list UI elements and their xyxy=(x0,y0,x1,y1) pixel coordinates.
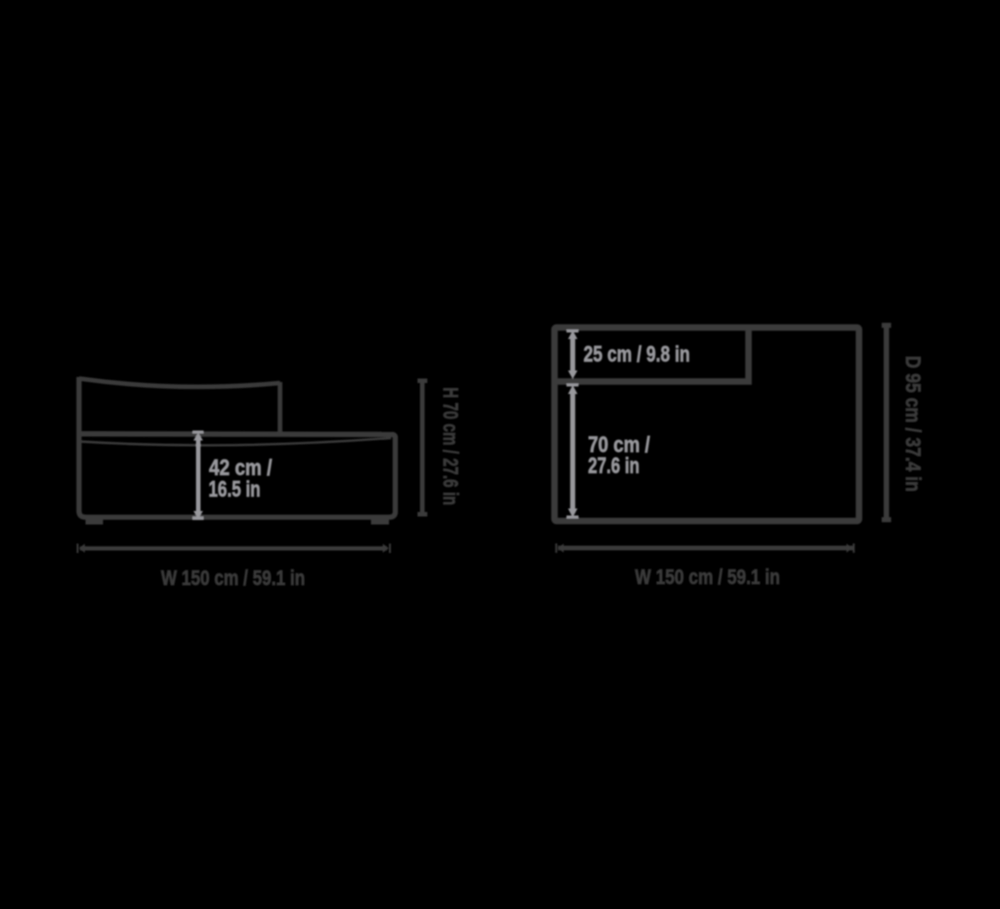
svg-text:16.5 in: 16.5 in xyxy=(209,477,261,502)
svg-text:H 70 cm / 27.6 in: H 70 cm / 27.6 in xyxy=(439,387,462,505)
svg-text:W 150 cm / 59.1 in: W 150 cm / 59.1 in xyxy=(635,566,780,589)
svg-text:27.6 in: 27.6 in xyxy=(588,453,640,478)
svg-text:W 150 cm / 59.1 in: W 150 cm / 59.1 in xyxy=(161,567,305,590)
svg-text:25 cm / 9.8 in: 25 cm / 9.8 in xyxy=(584,342,691,367)
svg-text:D 95 cm / 37.4 in: D 95 cm / 37.4 in xyxy=(901,356,924,492)
